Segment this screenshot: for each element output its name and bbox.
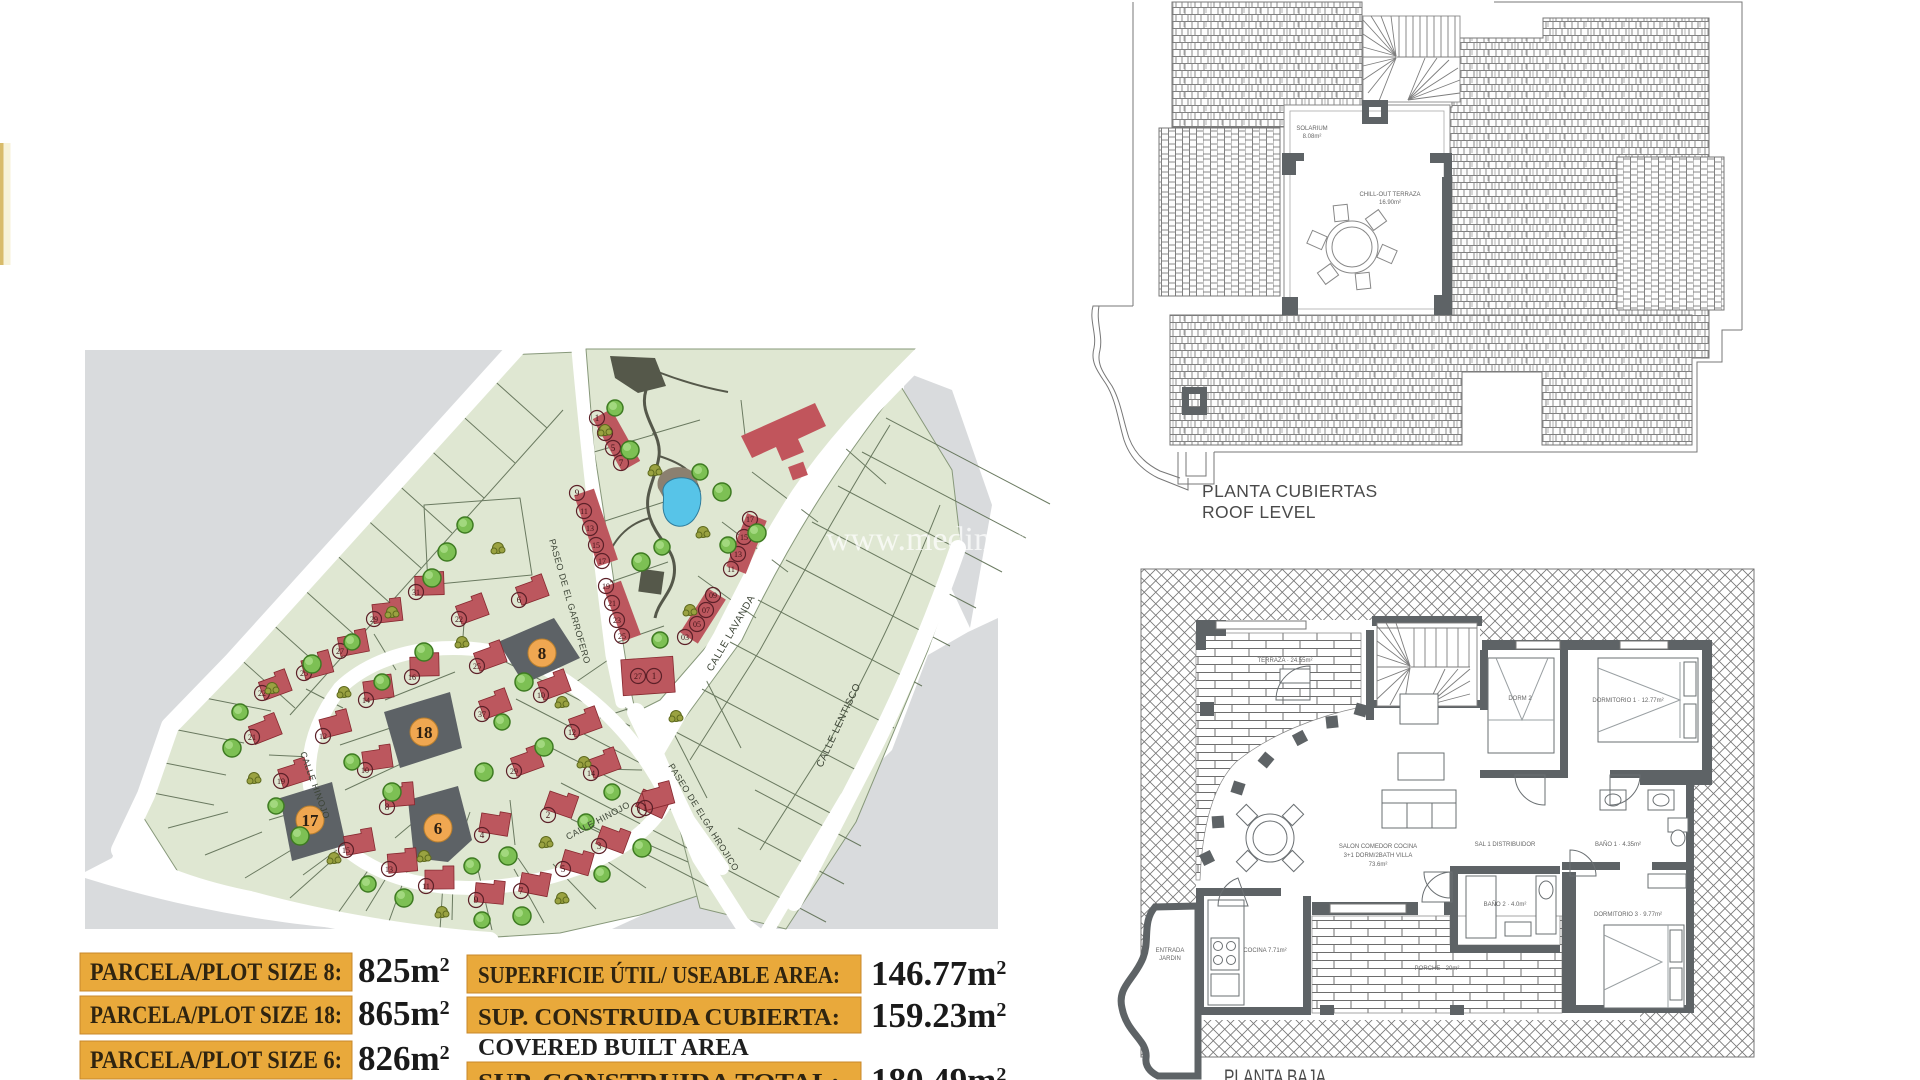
svg-text:4: 4 — [480, 830, 485, 840]
svg-text:3: 3 — [597, 841, 602, 851]
svg-text:21: 21 — [248, 733, 256, 742]
svg-text:6: 6 — [517, 595, 522, 605]
svg-text:10: 10 — [537, 691, 545, 700]
svg-text:13: 13 — [586, 524, 594, 533]
svg-text:146.77m2: 146.77m2 — [871, 954, 1006, 993]
svg-text:19: 19 — [277, 777, 285, 786]
svg-text:825m2: 825m2 — [358, 951, 450, 990]
svg-text:17: 17 — [746, 515, 754, 524]
svg-text:13: 13 — [734, 550, 742, 559]
svg-text:12: 12 — [568, 728, 576, 737]
svg-text:8: 8 — [385, 802, 390, 812]
svg-text:05: 05 — [693, 620, 701, 629]
svg-text:865m2: 865m2 — [358, 994, 450, 1033]
svg-text:SUPERFICIE ÚTIL/ USEABLE AREA:: SUPERFICIE ÚTIL/ USEABLE AREA: — [478, 963, 840, 989]
svg-text:ENTRADA: ENTRADA — [1156, 948, 1185, 954]
svg-text:23: 23 — [613, 616, 621, 625]
svg-text:180.49m2: 180.49m2 — [871, 1061, 1006, 1080]
svg-text:9: 9 — [575, 488, 580, 498]
svg-text:11: 11 — [727, 565, 735, 574]
svg-text:10: 10 — [361, 766, 369, 775]
svg-text:11: 11 — [580, 507, 588, 516]
svg-text:14: 14 — [587, 769, 595, 778]
svg-text:CHILL-OUT TERRAZA: CHILL-OUT TERRAZA — [1359, 192, 1420, 198]
svg-text:SOLARIUM: SOLARIUM — [1296, 126, 1327, 132]
svg-text:DORMITORIO 1 · 12.77m²: DORMITORIO 1 · 12.77m² — [1592, 698, 1663, 704]
svg-text:8: 8 — [538, 644, 547, 663]
svg-text:7: 7 — [519, 886, 524, 896]
svg-text:PARCELA/PLOT SIZE 18:: PARCELA/PLOT SIZE 18: — [90, 1002, 342, 1029]
svg-text:15: 15 — [740, 533, 748, 542]
svg-text:5: 5 — [561, 864, 566, 874]
svg-text:PARCELA/PLOT SIZE 6:: PARCELA/PLOT SIZE 6: — [90, 1047, 342, 1074]
svg-text:COVERED BUILT AREA: COVERED BUILT AREA — [478, 1035, 749, 1061]
svg-text:BAÑO 1 · 4.35m²: BAÑO 1 · 4.35m² — [1595, 841, 1641, 848]
svg-text:27: 27 — [634, 672, 642, 681]
svg-text:1: 1 — [643, 803, 648, 813]
svg-text:1: 1 — [652, 671, 657, 681]
svg-text:7: 7 — [619, 458, 624, 468]
svg-text:DORMITORIO 3 · 9.77m²: DORMITORIO 3 · 9.77m² — [1594, 912, 1662, 918]
svg-text:25: 25 — [473, 662, 481, 671]
svg-text:31: 31 — [412, 588, 420, 597]
svg-text:PORCHE · 20m²: PORCHE · 20m² — [1415, 966, 1460, 972]
svg-text:29: 29 — [510, 767, 518, 776]
svg-text:37: 37 — [478, 710, 486, 719]
svg-text:16.90m²: 16.90m² — [1379, 200, 1401, 206]
svg-text:16: 16 — [408, 673, 416, 682]
svg-text:14: 14 — [362, 696, 370, 705]
svg-text:03: 03 — [681, 633, 689, 642]
svg-text:SAL 1 DISTRIBUIDOR: SAL 1 DISTRIBUIDOR — [1475, 842, 1536, 848]
svg-text:SALON COMEDOR COCINA: SALON COMEDOR COCINA — [1339, 844, 1417, 850]
svg-text:826m2: 826m2 — [358, 1039, 450, 1078]
svg-text:PLANTA BAJA: PLANTA BAJA — [1224, 1066, 1326, 1080]
svg-text:12: 12 — [319, 732, 327, 741]
svg-text:09: 09 — [709, 591, 717, 600]
svg-text:159.23m2: 159.23m2 — [871, 996, 1006, 1035]
svg-text:9: 9 — [474, 895, 479, 905]
svg-text:22: 22 — [455, 615, 463, 624]
svg-text:5: 5 — [611, 443, 616, 453]
svg-text:15: 15 — [592, 541, 600, 550]
svg-text:11: 11 — [422, 882, 430, 891]
svg-text:www.medimarcien: www.medimarcien — [826, 521, 1083, 558]
svg-text:PARCELA/PLOT SIZE 8:: PARCELA/PLOT SIZE 8: — [90, 959, 342, 986]
svg-text:1: 1 — [595, 413, 600, 423]
svg-text:18: 18 — [416, 723, 433, 742]
svg-text:25: 25 — [618, 632, 626, 641]
svg-text:PLANTA CUBIERTAS: PLANTA CUBIERTAS — [1202, 481, 1378, 501]
svg-text:27: 27 — [336, 647, 344, 656]
svg-text:17: 17 — [598, 557, 606, 566]
svg-text:2: 2 — [546, 810, 551, 820]
svg-text:07: 07 — [702, 606, 710, 615]
svg-text:3+1 DORM/2BATH VILLA: 3+1 DORM/2BATH VILLA — [1344, 853, 1413, 859]
svg-text:ROOF LEVEL: ROOF LEVEL — [1202, 502, 1316, 522]
svg-text:73.6m²: 73.6m² — [1369, 862, 1388, 868]
svg-text:BAÑO 2 · 4.0m²: BAÑO 2 · 4.0m² — [1484, 901, 1527, 908]
svg-text:SUP. CONSTRUIDA CUBIERTA:: SUP. CONSTRUIDA CUBIERTA: — [478, 1005, 840, 1031]
svg-text:DORM 2: DORM 2 — [1508, 696, 1532, 702]
svg-text:8.08m²: 8.08m² — [1303, 134, 1322, 140]
svg-text:15: 15 — [342, 846, 350, 855]
svg-text:29: 29 — [370, 615, 378, 624]
svg-text:17: 17 — [302, 811, 320, 830]
svg-text:TERRAZA · 24.55m²: TERRAZA · 24.55m² — [1257, 658, 1312, 664]
svg-text:SUP. CONSTRUIDA TOTAL:: SUP. CONSTRUIDA TOTAL: — [478, 1070, 840, 1080]
svg-text:21: 21 — [608, 599, 616, 608]
svg-text:6: 6 — [434, 819, 443, 838]
svg-text:13: 13 — [385, 865, 393, 874]
svg-text:JARDIN: JARDIN — [1159, 956, 1181, 962]
svg-text:COCINA 7.71m²: COCINA 7.71m² — [1243, 948, 1286, 954]
svg-text:19: 19 — [602, 582, 610, 591]
